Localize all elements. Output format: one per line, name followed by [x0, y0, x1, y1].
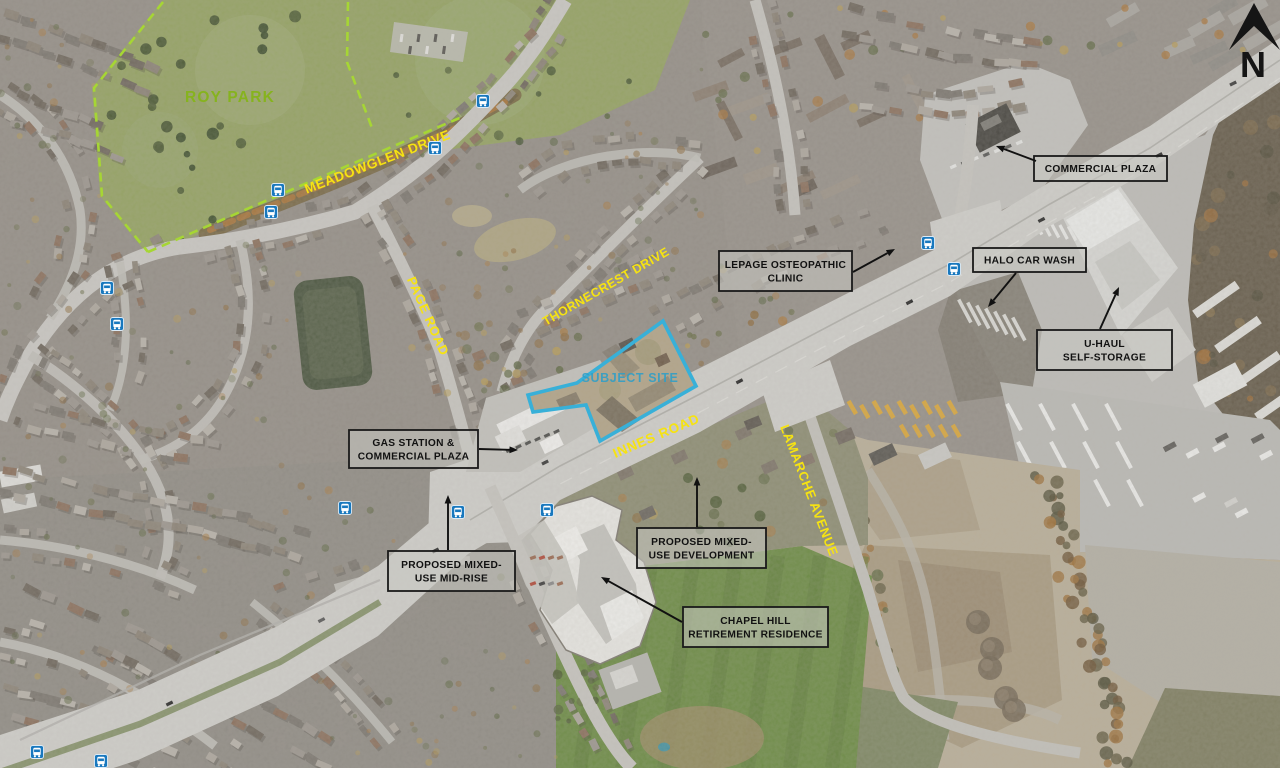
svg-text:CLINIC: CLINIC — [768, 273, 804, 284]
svg-text:COMMERCIAL PLAZA: COMMERCIAL PLAZA — [1045, 164, 1157, 175]
svg-text:RETIREMENT RESIDENCE: RETIREMENT RESIDENCE — [688, 629, 823, 640]
svg-text:N: N — [1240, 44, 1266, 85]
svg-text:USE MID-RISE: USE MID-RISE — [415, 573, 488, 584]
svg-text:ROY PARK: ROY PARK — [185, 89, 275, 106]
svg-text:PROPOSED MIXED-: PROPOSED MIXED- — [651, 537, 752, 548]
svg-text:LEPAGE OSTEOPATHIC: LEPAGE OSTEOPATHIC — [725, 260, 847, 271]
svg-text:CHAPEL HILL: CHAPEL HILL — [720, 616, 790, 627]
svg-text:PROPOSED MIXED-: PROPOSED MIXED- — [401, 560, 502, 571]
svg-text:USE DEVELOPMENT: USE DEVELOPMENT — [649, 550, 755, 561]
svg-text:SUBJECT SITE: SUBJECT SITE — [582, 371, 679, 385]
svg-text:GAS STATION &: GAS STATION & — [372, 438, 455, 449]
svg-text:SELF-STORAGE: SELF-STORAGE — [1063, 352, 1146, 363]
svg-text:HALO CAR WASH: HALO CAR WASH — [984, 256, 1075, 267]
svg-text:COMMERCIAL PLAZA: COMMERCIAL PLAZA — [358, 451, 470, 462]
svg-text:U-HAUL: U-HAUL — [1084, 339, 1125, 350]
